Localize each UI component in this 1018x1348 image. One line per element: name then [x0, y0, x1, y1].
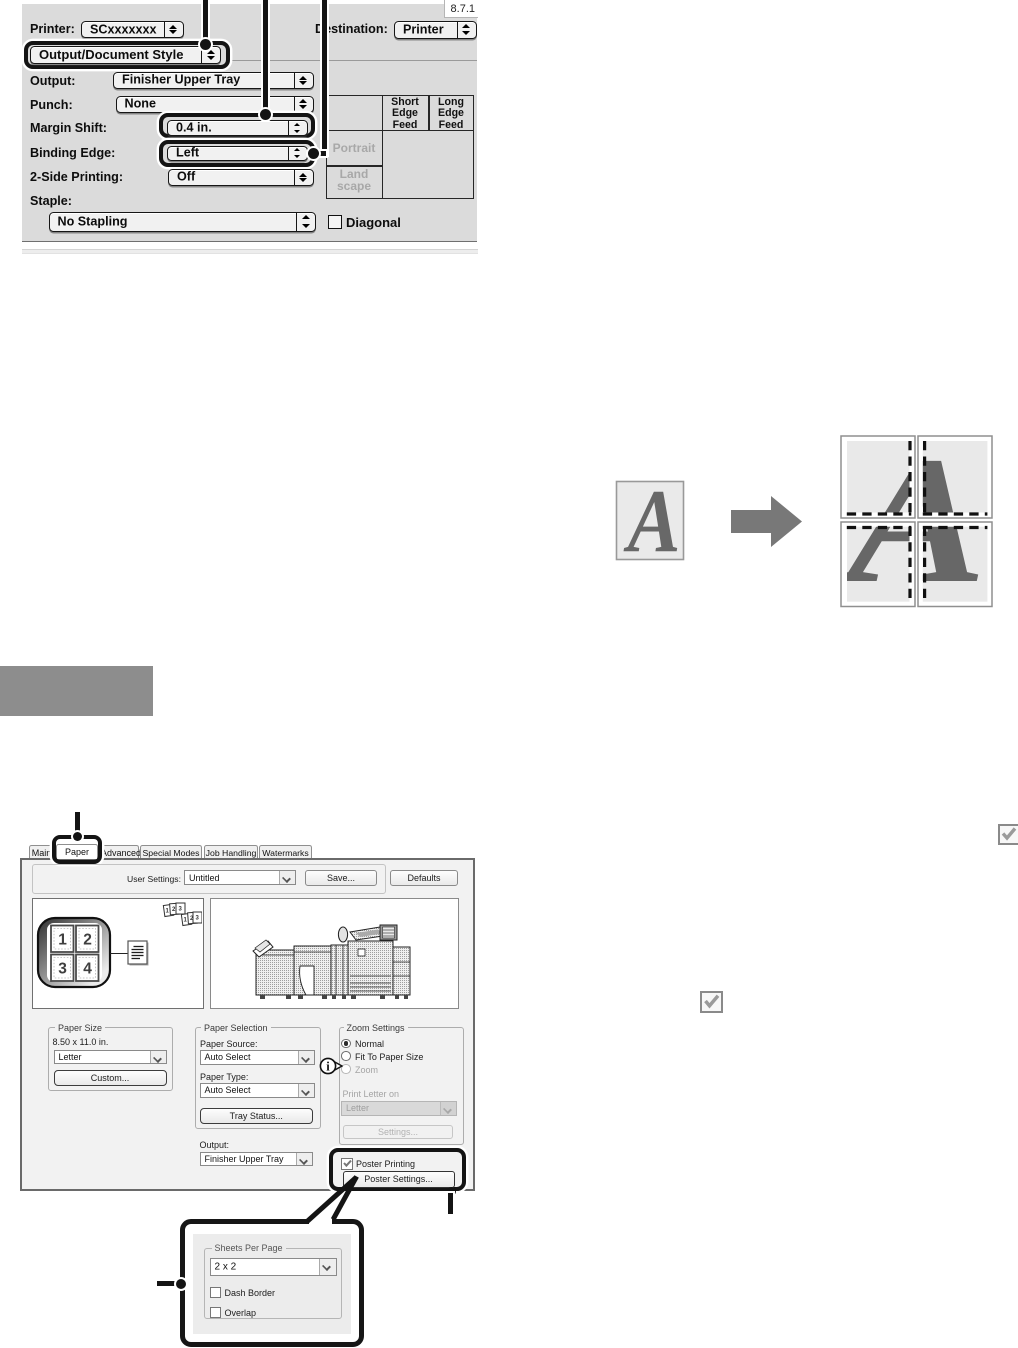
svg-text:3: 3 — [58, 961, 67, 978]
svg-text:4: 4 — [83, 961, 92, 978]
svg-text:2: 2 — [83, 932, 92, 949]
svg-text:1: 1 — [58, 932, 67, 949]
svg-text:A: A — [623, 471, 681, 571]
svg-text:i: i — [326, 1059, 330, 1073]
